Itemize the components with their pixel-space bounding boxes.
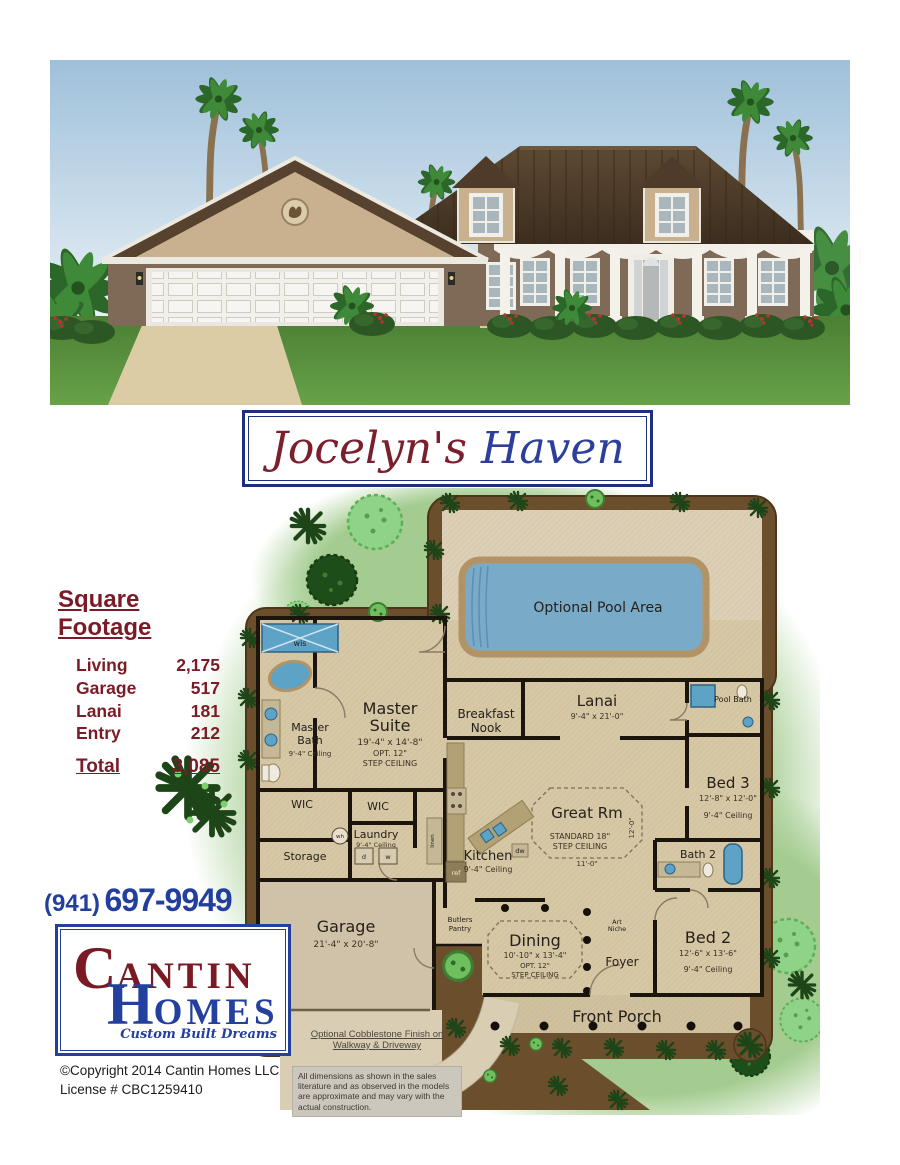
- sqft-total-row: Total3,085: [58, 755, 226, 780]
- wic2-label: WIC: [367, 800, 389, 813]
- svg-text:Suite: Suite: [370, 716, 411, 735]
- coach-lamp-left: [136, 272, 143, 285]
- square-footage-heading: Square Footage: [58, 586, 226, 642]
- svg-text:9'-4" x 21'-0": 9'-4" x 21'-0": [571, 712, 624, 721]
- kitchen-label: Kitchen: [464, 849, 513, 864]
- pool-bath-label: Pool Bath: [714, 695, 752, 704]
- bath2-label: Bath 2: [680, 848, 716, 861]
- front-door: [628, 254, 674, 324]
- shower-label: wis: [294, 639, 307, 648]
- svg-text:STEP CEILING: STEP CEILING: [511, 971, 559, 979]
- logo-tagline: Custom Built Dreams: [120, 1027, 277, 1042]
- svg-text:Nook: Nook: [471, 721, 502, 735]
- sqft-row-garage: Garage517: [58, 677, 226, 700]
- dw-label: dw: [515, 847, 525, 855]
- svg-text:Pantry: Pantry: [449, 925, 471, 933]
- wic1-label: WIC: [291, 798, 313, 811]
- svg-text:12'-8" x 12'-0": 12'-8" x 12'-0": [699, 794, 757, 803]
- svg-text:21'-4" x 20'-8": 21'-4" x 20'-8": [313, 940, 378, 950]
- butlers-pantry-label: Butlers: [448, 916, 473, 924]
- laundry-label: Laundry: [354, 828, 399, 841]
- foyer-label: Foyer: [605, 955, 638, 969]
- pool: Optional Pool Area: [462, 560, 706, 654]
- svg-text:OPT. 12": OPT. 12": [520, 962, 550, 970]
- svg-text:STANDARD 18": STANDARD 18": [550, 832, 610, 841]
- svg-text:OPT. 12": OPT. 12": [373, 749, 407, 758]
- pool-label: Optional Pool Area: [533, 600, 662, 616]
- garage-label: Garage: [317, 917, 376, 936]
- linen-label: linen: [430, 834, 436, 848]
- svg-text:19'-4" x 14'-8": 19'-4" x 14'-8": [357, 738, 422, 748]
- svg-text:9'-4" Ceiling: 9'-4" Ceiling: [464, 865, 513, 874]
- svg-text:11'-0": 11'-0": [576, 860, 597, 868]
- svg-text:Bath: Bath: [297, 734, 323, 747]
- coach-lamp-right: [448, 272, 455, 285]
- dining-label: Dining: [509, 931, 561, 950]
- cantin-homes-logo: CANTIN HOMES Custom Built Dreams: [55, 924, 291, 1056]
- plan-title-box: Jocelyn's Haven: [242, 410, 653, 487]
- washer-label: w: [385, 853, 391, 861]
- svg-text:STEP CEILING: STEP CEILING: [363, 759, 417, 768]
- square-footage-panel: Square Footage Living2,175 Garage517 Lan…: [58, 586, 226, 780]
- plan-title: Jocelyn's Haven: [248, 416, 647, 481]
- svg-text:12'-0": 12'-0": [628, 817, 636, 838]
- house-rendering: [50, 60, 850, 405]
- dryer-label: d: [362, 853, 366, 861]
- bed3-label: Bed 3: [706, 774, 749, 792]
- plan-title-first: Jocelyn's: [270, 427, 467, 471]
- sqft-row-lanai: Lanai181: [58, 700, 226, 723]
- svg-text:STEP CEILING: STEP CEILING: [553, 842, 607, 851]
- svg-text:10'-10" x 13'-4": 10'-10" x 13'-4": [504, 951, 567, 960]
- svg-text:9'-4" Ceiling: 9'-4" Ceiling: [684, 965, 733, 974]
- breakfast-nook-label: Breakfast: [457, 707, 514, 721]
- master-bath-label: Master: [291, 721, 329, 734]
- front-porch-label: Front Porch: [572, 1007, 662, 1026]
- sqft-row-living: Living2,175: [58, 654, 226, 677]
- phone-number: (941) 697-9949: [44, 882, 232, 919]
- storage-label: Storage: [283, 850, 326, 863]
- svg-text:Niche: Niche: [608, 925, 626, 933]
- wh-label: wh: [336, 834, 344, 840]
- dimensions-disclaimer: All dimensions as shown in the sales lit…: [292, 1066, 462, 1117]
- plan-title-second: Haven: [481, 427, 625, 471]
- svg-text:12'-6" x 13'-6": 12'-6" x 13'-6": [679, 949, 737, 958]
- lanai-label: Lanai: [577, 692, 617, 710]
- bed2-label: Bed 2: [685, 928, 731, 947]
- flyer-page: { "title": {"part1": "Jocelyn's", "part2…: [0, 0, 900, 1165]
- copyright-line: ©Copyright 2014 Cantin Homes LLC: [60, 1062, 279, 1081]
- cobblestone-note: Optional Cobblestone Finish on Walkway &…: [296, 1030, 458, 1052]
- copyright-block: ©Copyright 2014 Cantin Homes LLC License…: [60, 1062, 279, 1100]
- sqft-row-entry: Entry212: [58, 722, 226, 745]
- ref-label: ref: [452, 869, 462, 877]
- license-line: License # CBC1259410: [60, 1081, 279, 1100]
- garage-door: [146, 268, 444, 326]
- logo-homes: HOMES: [107, 974, 285, 1034]
- svg-text:9'-4" Ceiling: 9'-4" Ceiling: [704, 811, 753, 820]
- svg-text:9'-4" Ceiling: 9'-4" Ceiling: [356, 841, 396, 849]
- great-rm-label: Great Rm: [551, 804, 623, 822]
- svg-text:9'-4" Ceiling: 9'-4" Ceiling: [289, 750, 332, 758]
